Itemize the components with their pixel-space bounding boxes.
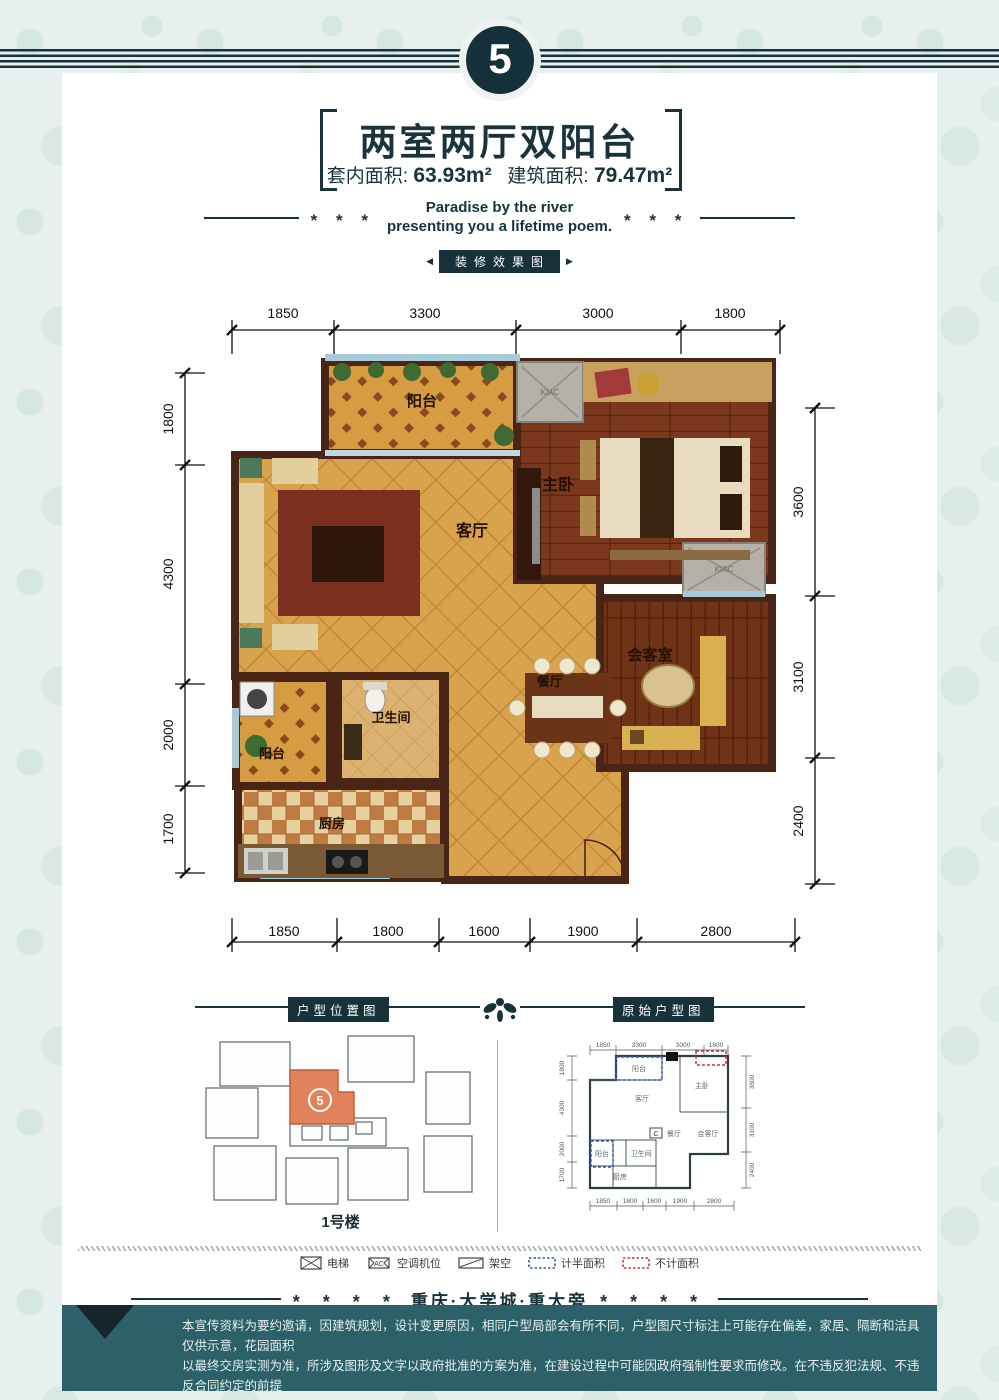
dim-top-3: 3000 (582, 305, 613, 321)
orig-dim-top-4: 1800 (709, 1042, 724, 1049)
orig-dim-bottom-2: 1800 (623, 1198, 638, 1205)
dresser-mirror (637, 373, 659, 395)
orig-dim-bottom-5: 2800 (707, 1198, 722, 1205)
orig-dim-left-3: 2000 (559, 1141, 566, 1156)
legend-item-elevator: 电梯 (300, 1255, 349, 1271)
orig-balcony-side-label: 阳台 (595, 1149, 609, 1158)
room-dining-label: 餐厅 (536, 674, 563, 689)
footer-rule-right (718, 1298, 868, 1300)
dim-top-1: 1850 (267, 305, 298, 321)
dim-top-4: 1800 (714, 305, 745, 321)
bed-bench-left-top (580, 440, 596, 480)
window-balcony-side (232, 708, 239, 768)
area-inner-value: 63.93m² (413, 164, 491, 187)
main-floorplan: K/AC K/AC (160, 288, 860, 968)
dim-right-1: 3600 (790, 486, 806, 517)
orig-dim-top-3: 3000 (676, 1042, 691, 1049)
armchair-bottom (272, 624, 318, 650)
building-label: 1号楼 (198, 1211, 483, 1232)
ac-icon: AC (366, 1256, 392, 1270)
sink-basin-2 (268, 852, 283, 870)
hatch-divider (78, 1246, 922, 1251)
section-label-row: ◀ 装修效果图 ▶ (0, 250, 999, 273)
dim-left-1: 1800 (160, 403, 176, 434)
dim-right-3: 2400 (790, 805, 806, 836)
room-reception-label: 会客室 (627, 646, 672, 664)
disclaimer-line1: 本宣传资料为要约邀请，因建筑规划，设计变更原因，相同户型局部会有所不同，户型图尺… (182, 1316, 920, 1356)
tv-screen (532, 488, 540, 564)
room-living-label: 客厅 (456, 521, 488, 540)
building-plate-map: 5 (198, 1030, 483, 1210)
plan-title: 两室两厅双阳台 (0, 112, 999, 166)
tagline-line1: Paradise by the river (426, 199, 574, 216)
original-outer-walls (590, 1056, 728, 1188)
reception-sofa-right (700, 636, 726, 726)
legend-elevator-label: 电梯 (327, 1255, 349, 1271)
end-table-top (240, 458, 262, 478)
original-ac-label: C (653, 1131, 658, 1138)
location-header: 户型位置图 (288, 997, 389, 1022)
disclaimer-line2: 以最终交房实测为准，所涉及图形及文字以政府批准的方案为准，在建设过程中可能因政府… (182, 1356, 920, 1396)
legend: 电梯 AC 空调机位 架空 计半面积 (0, 1255, 999, 1271)
area-build-label: 建筑面积: (507, 166, 588, 187)
section-label: 装修效果图 (439, 250, 560, 273)
elevator-icon (300, 1256, 322, 1270)
legend-item-ac: AC 空调机位 (366, 1255, 441, 1271)
legend-item-stilt: 架空 (458, 1255, 511, 1271)
pillow-2 (720, 494, 742, 530)
orig-dim-top-1: 1850 (596, 1042, 611, 1049)
orig-dim-left-2: 4300 (559, 1100, 566, 1115)
disclaimer-line3: 下，本公司亦有权做出细部调整，开发商不再另行通知，敬请关注相关最新宣传资料，买卖… (182, 1396, 920, 1400)
orig-dining-label: 餐厅 (667, 1129, 681, 1138)
dim-bottom-2: 1800 (372, 923, 403, 939)
legend-ac-label: 空调机位 (397, 1255, 441, 1271)
bed-foot-bench (610, 550, 750, 560)
ac-box-right-label: K/AC (715, 565, 734, 574)
room-balcony-side-label: 阳台 (259, 746, 285, 761)
tagline-stars-right: * * * (624, 205, 688, 231)
bed-runner (640, 438, 674, 538)
legend-item-half-area: 计半面积 (528, 1255, 605, 1271)
end-table-bottom (240, 628, 262, 648)
orig-reception-label: 会客厅 (698, 1129, 719, 1138)
area-line: 套内面积: 63.93m² 建筑面积: 79.47m² (0, 161, 999, 188)
washer-drum (247, 689, 267, 709)
dim-left-2: 4300 (160, 558, 176, 589)
original-floorplan: C 阳台 主卧 客厅 餐厅 会客厅 阳台 卫生间 厨房 1850 3300 30… (550, 1036, 775, 1226)
reception-rug (642, 665, 694, 707)
orig-dim-top-2: 3300 (632, 1042, 647, 1049)
half-area-icon (528, 1256, 556, 1270)
bed-bench-left-bottom (580, 496, 596, 536)
reception-pillow (630, 730, 644, 744)
ac-box-top-label: K/AC (541, 388, 560, 397)
tagline-line2: presenting you a lifetime poem. (387, 218, 612, 235)
area-inner-label: 套内面积: (327, 166, 408, 187)
disclaimer-text: 本宣传资料为要约邀请，因建筑规划，设计变更原因，相同户型局部会有所不同，户型图尺… (182, 1316, 920, 1400)
orig-dim-right-3: 2400 (749, 1162, 756, 1177)
unit-number-text: 5 (316, 1093, 323, 1108)
unit-number-badge: 5 (466, 26, 534, 94)
tagline-rule-right (700, 217, 795, 219)
orig-kitchen-label: 厨房 (613, 1172, 627, 1181)
orig-dim-right-2: 3100 (749, 1122, 756, 1137)
footer-rule-left (131, 1298, 281, 1300)
dim-left-4: 1700 (160, 813, 176, 844)
tagline-rule-left (204, 217, 299, 219)
triangle-right-icon: ▶ (566, 256, 573, 267)
disclaimer-band: 本宣传资料为要约邀请，因建筑规划，设计变更原因，相同户型局部会有所不同，户型图尺… (62, 1305, 937, 1391)
triangle-left-icon: ◀ (426, 256, 433, 267)
dresser-flower (594, 368, 631, 398)
dim-right-2: 3100 (790, 661, 806, 692)
sofa-left (239, 483, 264, 623)
tagline-stars-left: * * * (311, 205, 375, 231)
tagline-row: * * * Paradise by the river presenting y… (0, 199, 999, 237)
window-balcony-inner (325, 450, 520, 456)
room-bath-label: 卫生间 (371, 710, 410, 725)
orig-master-label: 主卧 (695, 1081, 709, 1090)
dim-left-3: 2000 (160, 719, 176, 750)
ribbon-notch (76, 1305, 134, 1339)
area-build-value: 79.47m² (594, 164, 672, 187)
room-balcony-top-label: 阳台 (407, 392, 437, 410)
orig-dim-right-1: 3600 (749, 1074, 756, 1089)
dim-bottom-4: 1900 (567, 923, 598, 939)
stilt-icon (458, 1256, 484, 1270)
elevator-core (666, 1052, 678, 1061)
ac-icon-text: AC (374, 1261, 384, 1268)
dim-bottom-3: 1600 (468, 923, 499, 939)
dim-top-2: 3300 (409, 305, 440, 321)
window-ac-right (683, 591, 765, 597)
legend-item-excluded-area: 不计面积 (622, 1255, 699, 1271)
section-divider (497, 1040, 498, 1232)
original-header: 原始户型图 (613, 997, 714, 1022)
sink-basin-1 (248, 852, 263, 870)
orig-dim-bottom-1: 1850 (596, 1198, 611, 1205)
dim-bottom-1: 1850 (268, 923, 299, 939)
tagline-text: Paradise by the river presenting you a l… (387, 199, 612, 237)
bath-vanity (344, 724, 362, 760)
room-master-label: 主卧 (542, 475, 574, 494)
pillow-1 (720, 446, 742, 482)
armchair-top (272, 458, 318, 484)
orig-living-label: 客厅 (635, 1094, 649, 1103)
orig-dim-bottom-4: 1900 (673, 1198, 688, 1205)
ornament-icon (481, 990, 519, 1028)
room-kitchen-label: 厨房 (319, 816, 345, 831)
legend-stilt-label: 架空 (489, 1255, 511, 1271)
orig-balcony-top-label: 阳台 (632, 1064, 646, 1073)
orig-dim-left-1: 1800 (559, 1060, 566, 1075)
poster-page: 5 两室两厅双阳台 套内面积: 63.93m² 建筑面积: 79.47m² * … (0, 0, 999, 1400)
burner-1 (332, 856, 344, 868)
orig-dim-bottom-3: 1600 (647, 1198, 662, 1205)
toilet-tank (363, 682, 387, 690)
legend-excluded-area-label: 不计面积 (655, 1255, 699, 1271)
orig-dim-left-4: 1700 (559, 1167, 566, 1182)
burner-2 (350, 856, 362, 868)
dim-bottom-5: 2800 (700, 923, 731, 939)
window-balcony-top (325, 354, 520, 361)
coffee-table (312, 526, 384, 582)
excluded-area-icon (622, 1256, 650, 1270)
dining-runner (532, 696, 603, 718)
legend-half-area-label: 计半面积 (561, 1255, 605, 1271)
orig-bath-label: 卫生间 (631, 1149, 652, 1158)
